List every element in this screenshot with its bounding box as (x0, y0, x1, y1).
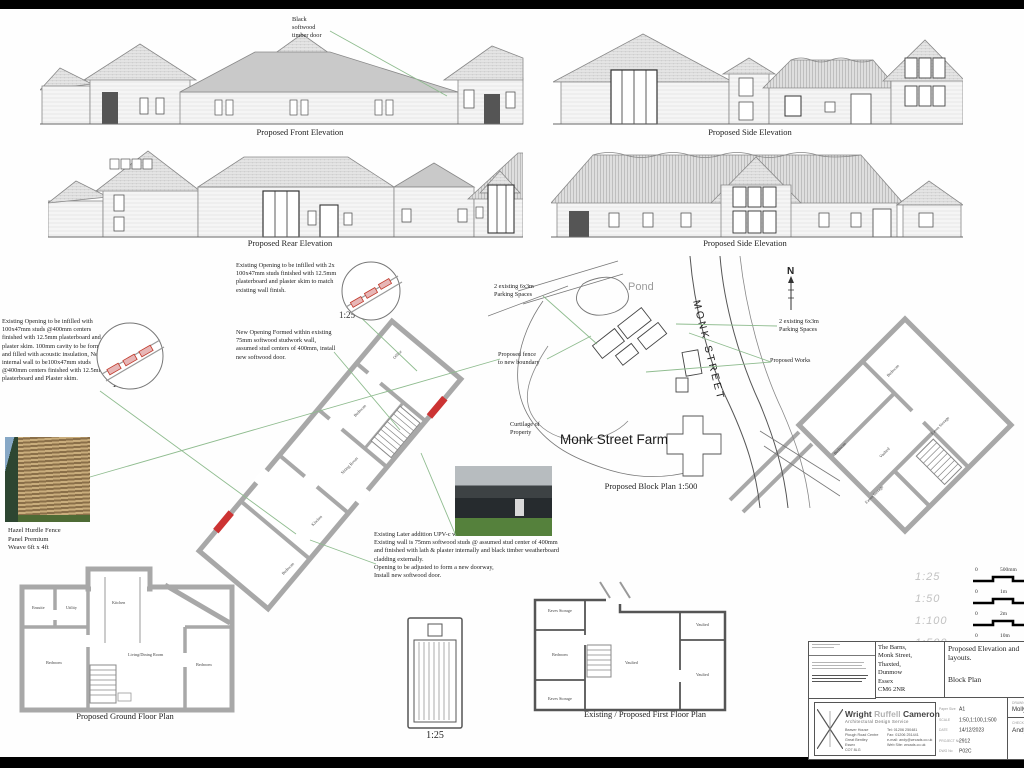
ground-floor-caption: Proposed Ground Floor Plan (30, 711, 220, 721)
field-row: DWG NoP02C (939, 742, 1005, 753)
first-room-bedroom: Bedroom (552, 652, 568, 657)
top-letterbox-bar (0, 0, 1024, 9)
ground-room-bedroom-left: Bedroom (46, 660, 62, 665)
door-detail-scale: 1:25 (400, 730, 470, 741)
detail-circle-1-scale: 1:25 (112, 379, 128, 389)
pond-label: Pond (628, 281, 654, 293)
sign-off-cell: DRAWN BY Molly Bro CHECKED Andy Cam (1007, 698, 1024, 759)
field-label: DWG No (939, 749, 959, 753)
curtilage-label: Curtilage of Property (510, 421, 560, 437)
scale-bar-row: 1:25 0 500mm (915, 568, 1024, 588)
side-elevation-a-caption: Proposed Side Elevation (640, 127, 860, 137)
scale-zero: 0 (975, 611, 978, 617)
ground-room-living: Living/Dining Room (128, 652, 163, 657)
fine-print-line-bold (812, 681, 862, 682)
side-elevation-a-drawing (553, 24, 963, 132)
black-door-note: Black softwood timber door (292, 16, 338, 41)
scale-zero: 0 (975, 589, 978, 595)
scale-zero: 0 (975, 633, 978, 639)
hazel-fence-photo (5, 437, 90, 522)
company-contact: Tel: 01206 250481 Fax: 01206 251441 e-ma… (887, 728, 932, 748)
farm-name-label: Monk Street Farm (560, 432, 690, 447)
first-room-vaulted-top: Vaulted (696, 622, 709, 627)
first-room-eaves-bottom: Eaves Storage (548, 696, 572, 701)
checked-value: Andy Cam (1012, 727, 1024, 734)
scale-unit: 1m (1000, 589, 1007, 595)
fence-boundary-label: Proposed fence to new boundary (498, 351, 558, 367)
scale-unit: 10m (1000, 633, 1010, 639)
field-row: SCALE1:50,1:100,1:500 (939, 711, 1005, 722)
hazel-fence-caption: Hazel Hurdle Fence Panel Premium Weave 6… (8, 527, 100, 553)
company-name: Wright Ruffell Cameron (845, 709, 940, 719)
parking-right-label: 2 existing 6x3m Parking Spaces (779, 318, 837, 334)
door-detail-drawing (400, 610, 470, 735)
scale-zero: 0 (975, 567, 978, 573)
checked-label: CHECKED (1012, 721, 1024, 725)
first-room-vaulted-main: Vaulted (625, 660, 638, 665)
sheet-fields: Paper SizeA1 SCALE1:50,1:100,1:500 DATE1… (939, 700, 1005, 756)
scale-bar-graphic (973, 596, 1024, 606)
drawing-subtitle: Block Plan (948, 675, 1022, 684)
scale-unit: 2m (1000, 611, 1007, 617)
ground-room-utility: Utility (66, 605, 77, 610)
company-name-last: Cameron (903, 709, 940, 719)
title-block: The Barns, Monk Street, Thaxted, Dunmow … (808, 641, 1024, 760)
fine-print-line (812, 647, 834, 648)
north-label: N (787, 266, 794, 277)
company-address: Beaver House Plough Road Centre Great Be… (845, 728, 878, 753)
fine-print-line (812, 668, 866, 669)
company-subtitle: Architectural Design Service (845, 719, 909, 724)
scale-ratio: 1:50 (915, 593, 940, 605)
scale-ratio: 1:25 (915, 571, 940, 583)
drawing-title-cell: Proposed Elevation and layouts. Block Pl… (945, 642, 1024, 698)
scale-unit: 500mm (1000, 567, 1017, 573)
scale-bar-graphic (973, 574, 1024, 584)
drawn-by-value: Molly Bro (1012, 707, 1024, 713)
drawn-by-label: DRAWN BY (1012, 701, 1024, 705)
scale-ratio: 1:100 (915, 615, 948, 627)
scale-bar-row: 1:100 0 2m (915, 612, 1024, 632)
company-name-mid: Ruffell (874, 709, 903, 719)
rear-elevation-caption: Proposed Rear Elevation (170, 238, 410, 248)
rear-elevation-drawing (48, 141, 523, 243)
first-room-vaulted-right: Vaulted (696, 672, 709, 677)
ground-floor-plan (10, 565, 250, 730)
proposed-works-label: Proposed Works (770, 357, 832, 365)
fine-print-line-bold (812, 675, 868, 676)
front-elevation-caption: Proposed Front Elevation (180, 127, 420, 137)
parking-left-label: 2 existing 6x3m Parking Spaces (494, 283, 554, 299)
fine-print-line (812, 665, 862, 666)
ground-room-ensuite: Ensuite (32, 605, 45, 610)
first-floor-caption: Existing / Proposed First Floor Plan (545, 709, 745, 719)
company-logo-box: Wright Ruffell Cameron Architectural Des… (814, 702, 936, 756)
scale-bar-graphic (973, 618, 1024, 628)
fine-print-line (812, 662, 864, 663)
drawing-title: Proposed Elevation and layouts. (948, 644, 1022, 663)
fine-print-line-bold (812, 678, 866, 679)
fine-print-line (812, 644, 840, 645)
revision-mini-box (809, 644, 875, 656)
scale-bar-row: 1:50 0 1m (915, 590, 1024, 610)
project-address: The Barns, Monk Street, Thaxted, Dunmow … (875, 642, 945, 698)
infill-note-1: Existing Opening to be infilled with 100… (2, 318, 108, 383)
block-plan-caption: Proposed Block Plan 1:500 (586, 481, 716, 491)
revision-notes-cell (809, 642, 876, 699)
drafting-logo-icon (817, 709, 843, 749)
side-elevation-b-drawing (551, 141, 963, 243)
drawing-sheet: Proposed Front Elevation Proposed Side E… (0, 0, 1024, 768)
ground-room-bedroom-right: Bedroom (196, 662, 212, 667)
ground-room-kitchen: Kitchen (112, 600, 125, 605)
company-name-first: Wright (845, 709, 874, 719)
front-elevation-drawing (40, 20, 525, 132)
side-elevation-b-caption: Proposed Side Elevation (635, 238, 855, 248)
sign-off-divider (1008, 717, 1024, 718)
field-row: Paper SizeA1 (939, 700, 1005, 711)
first-room-eaves-top: Eaves Storage (548, 608, 572, 613)
field-value: P02C (959, 748, 972, 754)
